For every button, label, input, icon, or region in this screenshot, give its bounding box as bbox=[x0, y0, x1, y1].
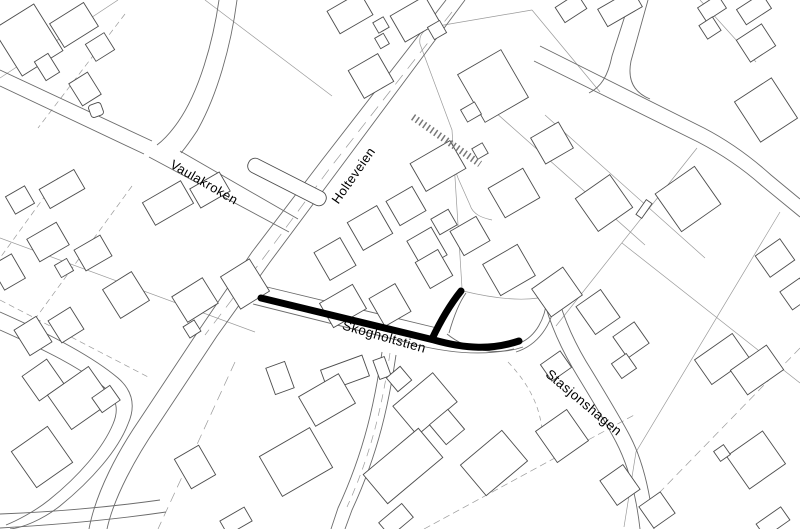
building-outline bbox=[780, 278, 800, 310]
building-outline bbox=[363, 428, 443, 503]
building-outline bbox=[85, 33, 114, 62]
road-edge bbox=[181, 0, 237, 153]
building-outline bbox=[555, 0, 587, 23]
building-outline bbox=[183, 320, 201, 338]
building-outline bbox=[327, 0, 373, 34]
building-outline bbox=[536, 410, 589, 463]
building-outline bbox=[613, 322, 649, 358]
road-edge bbox=[0, 86, 144, 154]
building-outline bbox=[699, 17, 721, 39]
building-outline bbox=[576, 289, 620, 334]
building-outline bbox=[737, 0, 772, 25]
building-outline bbox=[736, 24, 775, 62]
parcel-line bbox=[508, 362, 542, 430]
building-outline bbox=[373, 17, 389, 33]
building-outline bbox=[734, 78, 797, 142]
building-outline bbox=[531, 122, 574, 164]
building-outline bbox=[347, 206, 392, 251]
building-outline bbox=[611, 353, 636, 378]
building-outline bbox=[5, 186, 34, 214]
building-outline bbox=[11, 426, 72, 487]
parcel-line bbox=[556, 148, 697, 326]
building-outline bbox=[756, 507, 790, 529]
building-outline bbox=[460, 430, 527, 495]
building-outline bbox=[483, 244, 536, 295]
map-canvas: VaulakrokenHolteveienSkogholtstienStasjo… bbox=[0, 0, 800, 529]
building-outline bbox=[532, 267, 583, 317]
building-outline bbox=[14, 316, 52, 355]
road-edge bbox=[0, 500, 160, 514]
building-outline bbox=[142, 181, 193, 226]
building-outline bbox=[69, 72, 101, 106]
building-outline bbox=[488, 168, 540, 217]
building-outline bbox=[27, 222, 69, 262]
building-outline bbox=[259, 428, 332, 497]
parcel-line bbox=[158, 362, 235, 529]
building-outline bbox=[348, 54, 393, 99]
parcel-line bbox=[205, 0, 332, 96]
building-outline bbox=[174, 445, 215, 488]
building-outline bbox=[88, 102, 105, 119]
building-outline bbox=[575, 175, 632, 232]
road-edge bbox=[157, 0, 219, 145]
building-outline bbox=[39, 169, 85, 208]
building-outline bbox=[375, 33, 390, 48]
highlighted-street bbox=[432, 291, 461, 339]
building-layer bbox=[0, 0, 800, 529]
building-outline bbox=[600, 465, 640, 506]
building-outline bbox=[598, 0, 643, 27]
building-outline bbox=[639, 492, 675, 528]
building-outline bbox=[314, 238, 356, 281]
building-outline bbox=[266, 361, 294, 394]
road-edge bbox=[630, 0, 650, 99]
building-outline bbox=[755, 239, 794, 278]
building-outline bbox=[54, 258, 73, 277]
building-outline bbox=[379, 503, 414, 529]
building-outline bbox=[0, 254, 25, 290]
building-outline bbox=[74, 235, 112, 271]
street-label-holteveien: Holteveien bbox=[328, 144, 378, 206]
building-outline bbox=[245, 156, 328, 208]
building-outline bbox=[727, 431, 786, 489]
building-outline bbox=[220, 507, 252, 529]
building-outline bbox=[386, 186, 426, 225]
map-view: VaulakrokenHolteveienSkogholtstienStasjo… bbox=[0, 0, 800, 529]
building-outline bbox=[636, 200, 652, 219]
